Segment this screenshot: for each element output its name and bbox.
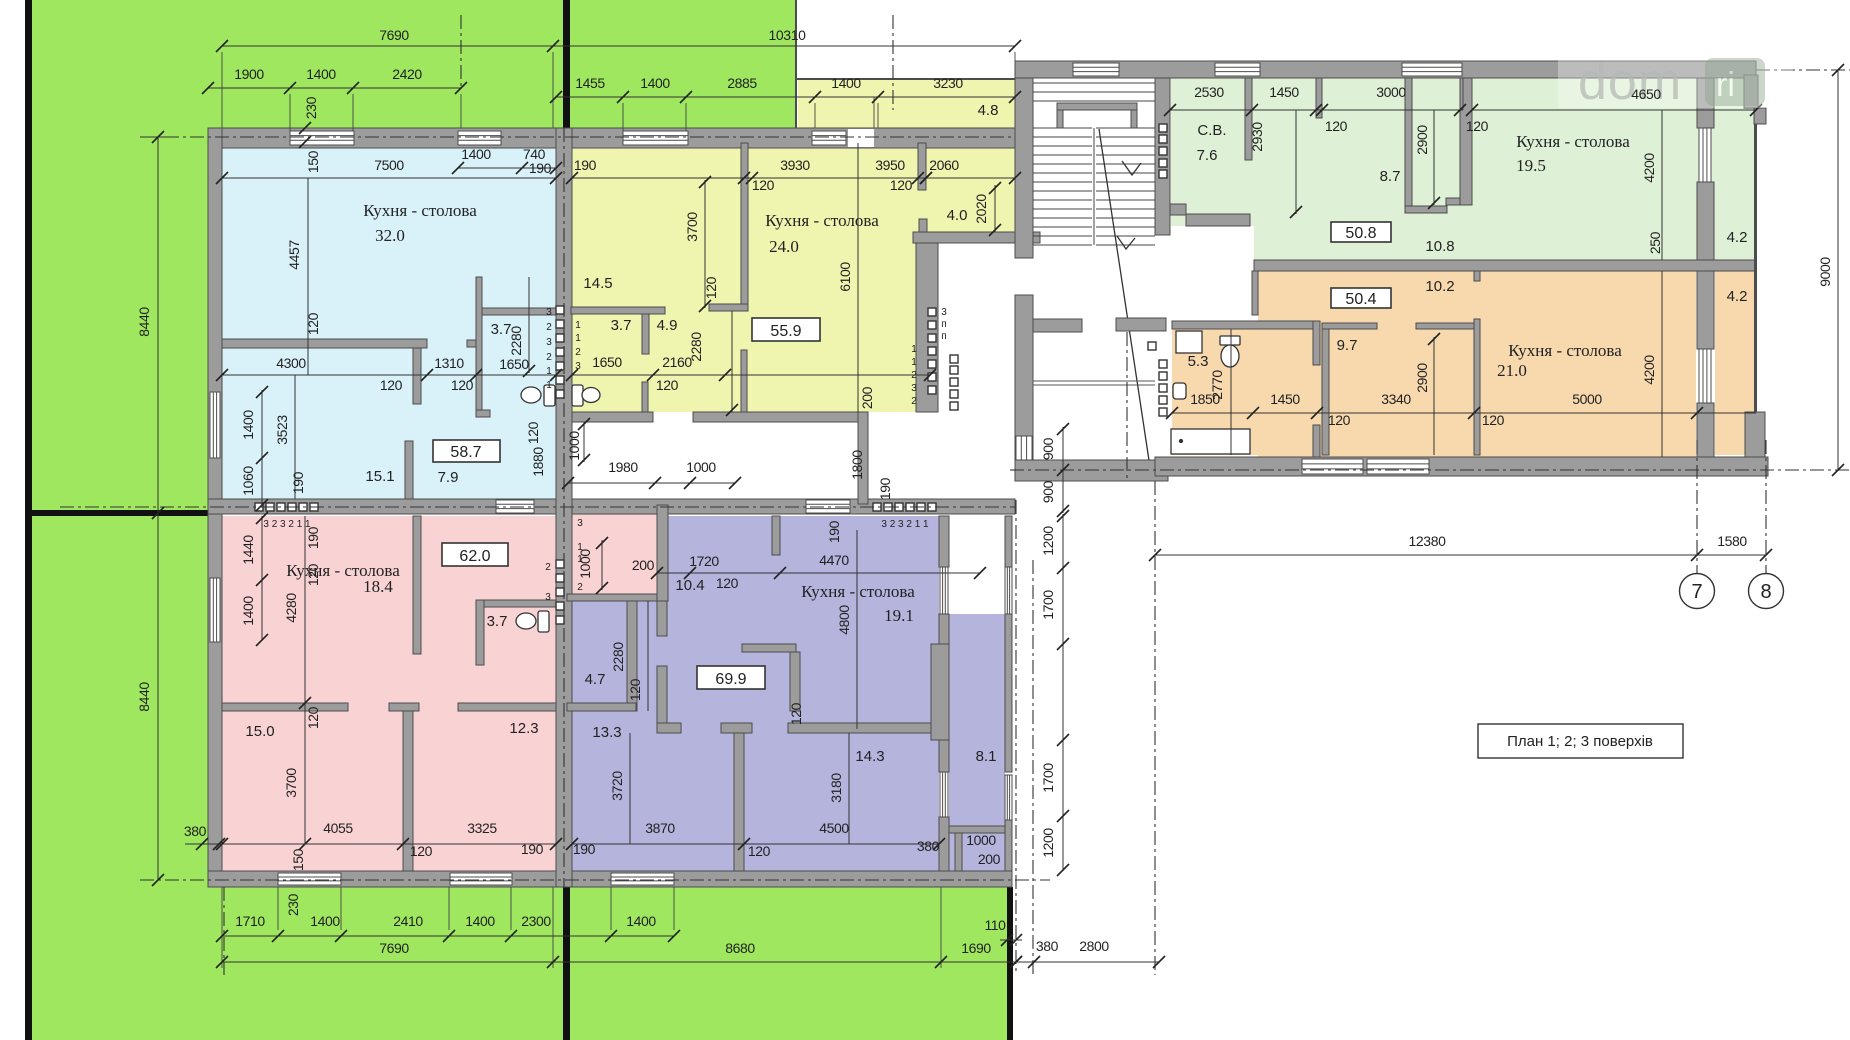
svg-text:2885: 2885 xyxy=(727,75,757,91)
svg-text:150: 150 xyxy=(305,150,321,173)
svg-text:5.3: 5.3 xyxy=(1188,353,1209,370)
svg-text:2: 2 xyxy=(575,347,581,358)
svg-text:3325: 3325 xyxy=(467,820,497,836)
svg-text:1710: 1710 xyxy=(235,913,265,929)
svg-text:1400: 1400 xyxy=(240,596,256,626)
svg-text:190: 190 xyxy=(529,160,552,176)
svg-text:3000: 3000 xyxy=(1376,84,1406,100)
svg-text:1400: 1400 xyxy=(310,913,340,929)
svg-text:2280: 2280 xyxy=(610,642,626,672)
svg-text:7500: 7500 xyxy=(374,157,404,173)
svg-text:3: 3 xyxy=(911,383,917,394)
svg-text:10.4: 10.4 xyxy=(675,577,704,594)
svg-text:1000: 1000 xyxy=(966,832,996,848)
svg-text:7.9: 7.9 xyxy=(438,469,459,486)
svg-text:120: 120 xyxy=(1325,118,1348,134)
svg-text:4055: 4055 xyxy=(323,820,353,836)
svg-text:2: 2 xyxy=(546,322,552,333)
svg-text:230: 230 xyxy=(303,96,319,119)
svg-text:32.0: 32.0 xyxy=(375,226,405,245)
svg-text:4.9: 4.9 xyxy=(657,317,678,334)
svg-text:6100: 6100 xyxy=(837,262,853,292)
svg-text:3870: 3870 xyxy=(645,820,675,836)
svg-text:1: 1 xyxy=(911,344,917,355)
svg-text:18.4: 18.4 xyxy=(363,577,393,596)
svg-text:3950: 3950 xyxy=(875,157,905,173)
svg-text:4200: 4200 xyxy=(1641,153,1657,183)
svg-text:4800: 4800 xyxy=(836,605,852,635)
svg-text:21.0: 21.0 xyxy=(1497,361,1527,380)
svg-text:190: 190 xyxy=(826,520,842,543)
svg-text:120: 120 xyxy=(305,706,321,729)
svg-text:2300: 2300 xyxy=(521,913,551,929)
svg-text:1: 1 xyxy=(546,380,552,391)
svg-text:4200: 4200 xyxy=(1641,355,1657,385)
svg-text:2530: 2530 xyxy=(1194,84,1224,100)
svg-text:19.5: 19.5 xyxy=(1516,156,1546,175)
svg-text:1400: 1400 xyxy=(306,66,336,82)
svg-text:1880: 1880 xyxy=(530,447,546,477)
svg-text:1690: 1690 xyxy=(961,940,991,956)
svg-text:14.3: 14.3 xyxy=(855,748,884,765)
svg-text:1200: 1200 xyxy=(1040,828,1056,858)
svg-text:120: 120 xyxy=(627,678,643,701)
svg-text:3523: 3523 xyxy=(274,415,290,445)
svg-text:50.8: 50.8 xyxy=(1345,225,1376,242)
svg-text:120: 120 xyxy=(1328,412,1351,428)
svg-text:3: 3 xyxy=(941,307,947,318)
svg-text:150: 150 xyxy=(290,848,306,871)
svg-text:200: 200 xyxy=(978,851,1001,867)
svg-text:4.8: 4.8 xyxy=(978,102,999,119)
svg-text:120: 120 xyxy=(748,843,771,859)
svg-text:1: 1 xyxy=(911,357,917,368)
svg-text:1850: 1850 xyxy=(1190,391,1220,407)
svg-text:3 2 3 2 1 1: 3 2 3 2 1 1 xyxy=(263,519,311,530)
svg-text:10310: 10310 xyxy=(769,27,807,43)
svg-text:1400: 1400 xyxy=(465,913,495,929)
svg-text:3 2 3 2 1 1: 3 2 3 2 1 1 xyxy=(881,519,929,530)
svg-text:4.2: 4.2 xyxy=(1727,229,1748,246)
svg-text:9000: 9000 xyxy=(1817,257,1833,287)
svg-text:1700: 1700 xyxy=(1040,590,1056,620)
svg-text:3930: 3930 xyxy=(780,157,810,173)
svg-text:3.7: 3.7 xyxy=(491,321,512,338)
svg-text:2280: 2280 xyxy=(688,332,704,362)
svg-text:1400: 1400 xyxy=(240,410,256,440)
svg-text:14.5: 14.5 xyxy=(583,275,612,292)
svg-text:4.7: 4.7 xyxy=(585,671,606,688)
svg-text:7690: 7690 xyxy=(379,27,409,43)
svg-text:190: 190 xyxy=(877,477,893,500)
svg-text:250: 250 xyxy=(1647,231,1663,254)
svg-text:4500: 4500 xyxy=(819,820,849,836)
svg-text:3: 3 xyxy=(546,337,552,348)
svg-text:120: 120 xyxy=(451,377,474,393)
svg-text:380: 380 xyxy=(917,838,940,854)
svg-text:2420: 2420 xyxy=(392,66,422,82)
svg-text:120: 120 xyxy=(788,702,804,725)
svg-text:69.9: 69.9 xyxy=(715,671,746,688)
svg-text:8680: 8680 xyxy=(725,940,755,956)
svg-text:4280: 4280 xyxy=(283,593,299,623)
svg-text:12380: 12380 xyxy=(1409,533,1447,549)
svg-text:9.7: 9.7 xyxy=(1337,337,1358,354)
svg-text:1900: 1900 xyxy=(234,66,264,82)
svg-text:24.0: 24.0 xyxy=(769,237,799,256)
svg-text:dom: dom xyxy=(1578,53,1682,111)
svg-text:1455: 1455 xyxy=(575,75,605,91)
svg-text:Кухня - столова: Кухня - столова xyxy=(363,201,477,220)
svg-text:4470: 4470 xyxy=(819,552,849,568)
svg-text:19.1: 19.1 xyxy=(884,606,914,625)
svg-text:3: 3 xyxy=(546,307,552,318)
svg-text:1720: 1720 xyxy=(689,553,719,569)
svg-text:2900: 2900 xyxy=(1414,125,1430,155)
svg-text:8440: 8440 xyxy=(136,307,152,337)
svg-text:120: 120 xyxy=(305,312,321,335)
svg-text:2930: 2930 xyxy=(1249,122,1265,152)
svg-text:3700: 3700 xyxy=(283,768,299,798)
svg-text:3720: 3720 xyxy=(609,771,625,801)
svg-text:1200: 1200 xyxy=(1040,526,1056,556)
svg-text:120: 120 xyxy=(1466,118,1489,134)
svg-text:58.7: 58.7 xyxy=(450,444,481,461)
svg-text:2: 2 xyxy=(911,396,917,407)
svg-text:7: 7 xyxy=(1691,581,1702,603)
svg-text:Кухня - столова: Кухня - столова xyxy=(765,211,879,230)
svg-text:380: 380 xyxy=(1036,938,1059,954)
svg-text:8.1: 8.1 xyxy=(976,748,997,765)
svg-text:4.0: 4.0 xyxy=(947,207,968,224)
svg-text:п: п xyxy=(941,319,946,330)
svg-text:900: 900 xyxy=(1040,480,1056,503)
svg-text:120: 120 xyxy=(525,421,541,444)
svg-text:190: 190 xyxy=(574,157,597,173)
svg-text:8440: 8440 xyxy=(136,682,152,712)
svg-text:120: 120 xyxy=(410,843,433,859)
svg-text:190: 190 xyxy=(573,841,596,857)
svg-text:4300: 4300 xyxy=(276,355,306,371)
svg-text:3: 3 xyxy=(577,518,583,529)
svg-text:2060: 2060 xyxy=(929,157,959,173)
svg-text:1440: 1440 xyxy=(240,535,256,565)
svg-text:1650: 1650 xyxy=(592,354,622,370)
svg-text:п: п xyxy=(941,331,946,342)
svg-text:55.9: 55.9 xyxy=(770,323,801,340)
svg-text:1000: 1000 xyxy=(577,549,593,579)
svg-text:200: 200 xyxy=(859,386,875,409)
svg-text:2: 2 xyxy=(577,582,583,593)
svg-text:2: 2 xyxy=(546,352,552,363)
svg-text:1450: 1450 xyxy=(1269,84,1299,100)
svg-text:190: 190 xyxy=(290,471,306,494)
svg-text:2410: 2410 xyxy=(393,913,423,929)
svg-text:120: 120 xyxy=(716,575,739,591)
svg-text:190: 190 xyxy=(521,841,544,857)
svg-text:1650: 1650 xyxy=(499,356,529,372)
svg-text:13.3: 13.3 xyxy=(592,724,621,741)
svg-text:10.2: 10.2 xyxy=(1425,278,1454,295)
svg-text:1800: 1800 xyxy=(849,450,865,480)
svg-text:План 1; 2; 3 поверхів: План 1; 2; 3 поверхів xyxy=(1507,733,1653,750)
svg-text:900: 900 xyxy=(1040,437,1056,460)
svg-text:1700: 1700 xyxy=(1040,763,1056,793)
svg-text:2900: 2900 xyxy=(1414,363,1430,393)
svg-text:8: 8 xyxy=(1760,581,1771,603)
svg-text:10.8: 10.8 xyxy=(1425,238,1454,255)
svg-text:2: 2 xyxy=(545,562,551,573)
svg-text:1400: 1400 xyxy=(640,75,670,91)
svg-text:1000: 1000 xyxy=(566,431,582,461)
svg-text:1980: 1980 xyxy=(608,459,638,475)
svg-text:3340: 3340 xyxy=(1381,391,1411,407)
svg-text:2800: 2800 xyxy=(1079,938,1109,954)
svg-text:120: 120 xyxy=(752,177,775,193)
svg-text:1310: 1310 xyxy=(434,355,464,371)
svg-text:12.3: 12.3 xyxy=(509,720,538,737)
svg-text:4457: 4457 xyxy=(286,240,302,270)
svg-text:3.7: 3.7 xyxy=(611,317,632,334)
svg-text:230: 230 xyxy=(285,893,301,916)
svg-text:2020: 2020 xyxy=(973,194,989,224)
svg-text:15.1: 15.1 xyxy=(365,468,394,485)
svg-text:3230: 3230 xyxy=(933,75,963,91)
svg-text:1: 1 xyxy=(575,333,581,344)
svg-text:1400: 1400 xyxy=(461,146,491,162)
svg-text:Кухня - столова: Кухня - столова xyxy=(1516,132,1630,151)
svg-text:8.7: 8.7 xyxy=(1380,168,1401,185)
svg-text:15.0: 15.0 xyxy=(245,723,274,740)
svg-text:1450: 1450 xyxy=(1270,391,1300,407)
svg-text:62.0: 62.0 xyxy=(459,548,490,565)
svg-text:1400: 1400 xyxy=(626,913,656,929)
svg-text:5000: 5000 xyxy=(1572,391,1602,407)
svg-text:3180: 3180 xyxy=(828,773,844,803)
svg-text:120: 120 xyxy=(890,177,913,193)
svg-text:50.4: 50.4 xyxy=(1345,291,1376,308)
svg-text:120: 120 xyxy=(1482,412,1505,428)
svg-text:1580: 1580 xyxy=(1717,533,1747,549)
svg-text:ri: ri xyxy=(1716,66,1735,104)
svg-text:С.В.: С.В. xyxy=(1197,122,1226,139)
svg-text:1060: 1060 xyxy=(240,466,256,496)
svg-text:Кухня - столова: Кухня - столова xyxy=(801,582,915,601)
svg-text:120: 120 xyxy=(703,276,719,299)
svg-text:200: 200 xyxy=(632,557,655,573)
svg-text:120: 120 xyxy=(380,377,403,393)
svg-text:380: 380 xyxy=(184,823,207,839)
svg-text:4650: 4650 xyxy=(1631,86,1661,102)
svg-text:3.7: 3.7 xyxy=(487,613,508,630)
svg-text:110: 110 xyxy=(984,917,1006,933)
svg-text:7.6: 7.6 xyxy=(1197,147,1218,164)
svg-text:1400: 1400 xyxy=(831,75,861,91)
svg-text:1: 1 xyxy=(575,320,581,331)
svg-text:4.2: 4.2 xyxy=(1727,288,1748,305)
svg-text:3: 3 xyxy=(545,592,551,603)
svg-text:190: 190 xyxy=(305,526,321,549)
svg-text:Кухня - столова: Кухня - столова xyxy=(1508,341,1622,360)
svg-text:120: 120 xyxy=(656,377,679,393)
svg-text:7690: 7690 xyxy=(379,940,409,956)
svg-text:1000: 1000 xyxy=(686,459,716,475)
svg-text:3700: 3700 xyxy=(684,212,700,242)
